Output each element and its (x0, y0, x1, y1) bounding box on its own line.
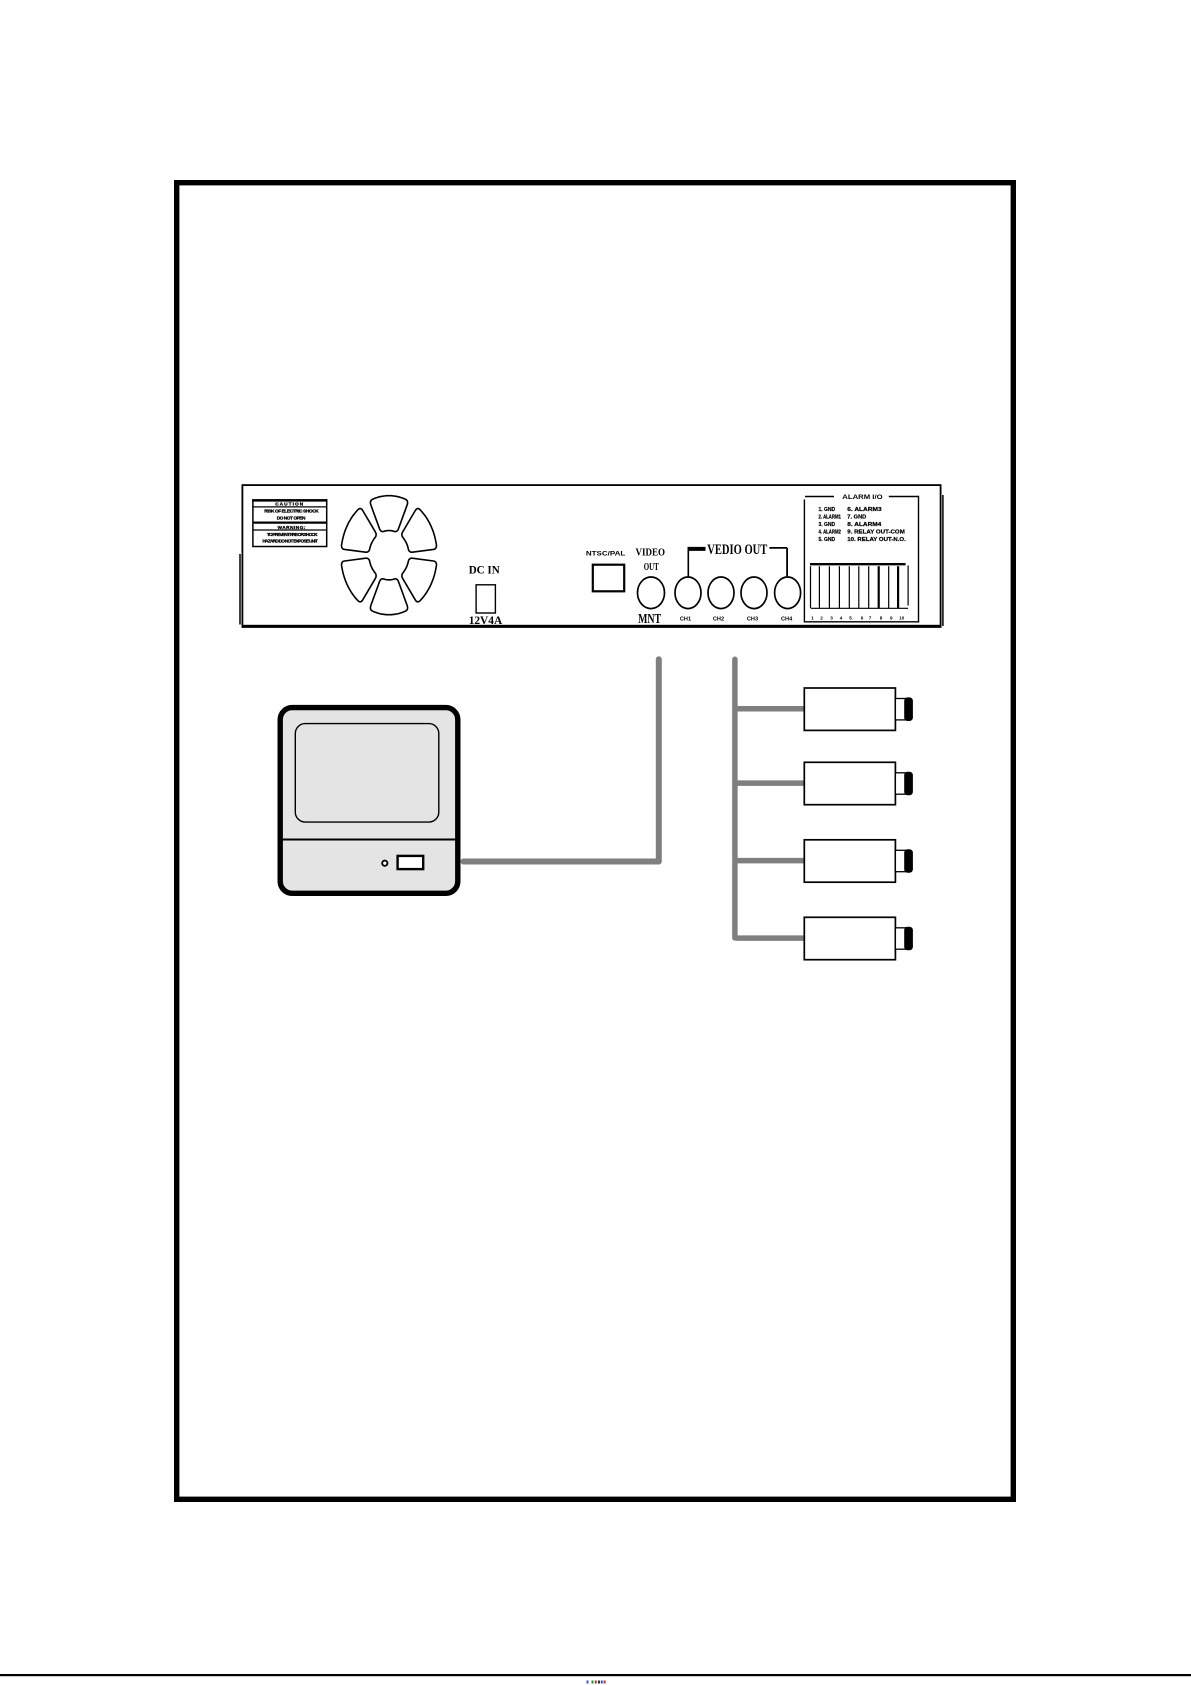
svg-text:VIDEO: VIDEO (636, 547, 666, 558)
svg-text:7. GND: 7. GND (847, 514, 866, 520)
svg-text:9: 9 (890, 616, 893, 621)
svg-text:CAUTION: CAUTION (275, 502, 304, 508)
svg-text:10. RELAY OUT-N.O.: 10. RELAY OUT-N.O. (847, 537, 906, 543)
svg-text:4: 4 (840, 616, 843, 621)
svg-text:10: 10 (899, 616, 905, 621)
svg-text:7: 7 (869, 616, 872, 621)
svg-text:1. GND: 1. GND (819, 507, 836, 513)
svg-text:12V4A: 12V4A (469, 615, 503, 627)
svg-text:ALARM I/O: ALARM I/O (842, 494, 882, 501)
svg-text:9. RELAY OUT-COM: 9. RELAY OUT-COM (847, 530, 905, 536)
svg-text:VEDIO OUT: VEDIO OUT (707, 542, 767, 558)
svg-text:MNT: MNT (638, 612, 661, 627)
svg-text:NTSC/PAL: NTSC/PAL (586, 550, 626, 557)
svg-text:3: 3 (830, 616, 833, 621)
svg-text:DO NOT OPEN: DO NOT OPEN (277, 516, 306, 522)
svg-text:CH2: CH2 (713, 617, 724, 623)
svg-text:6. ALARM3: 6. ALARM3 (847, 507, 881, 513)
svg-text:4. ALARM2: 4. ALARM2 (819, 530, 841, 536)
svg-text:OUT: OUT (644, 562, 659, 573)
svg-text:WARNING:: WARNING: (278, 525, 306, 531)
svg-text:RISK OF ELECTRIC SHOCK: RISK OF ELECTRIC SHOCK (264, 509, 319, 515)
svg-text:6: 6 (861, 616, 864, 621)
svg-text:3. GND: 3. GND (819, 522, 836, 528)
svg-text:5. GND: 5. GND (819, 537, 836, 543)
svg-text:DC IN: DC IN (469, 563, 500, 577)
svg-text:TO PREVENT FIRE OR SHOCK: TO PREVENT FIRE OR SHOCK (267, 532, 318, 538)
svg-text:8: 8 (880, 616, 883, 621)
svg-text:HAZARD DO NOT EXPOSE UNIT: HAZARD DO NOT EXPOSE UNIT (262, 539, 318, 545)
svg-text:CH3: CH3 (747, 617, 758, 623)
svg-text:1: 1 (811, 616, 814, 621)
svg-text:2. ALARM1: 2. ALARM1 (819, 514, 841, 520)
svg-text:8. ALARM4: 8. ALARM4 (847, 522, 881, 528)
svg-text:2: 2 (820, 616, 823, 621)
svg-text:CH1: CH1 (680, 617, 691, 623)
svg-text:CH4: CH4 (781, 617, 793, 623)
svg-text:5: 5 (849, 616, 852, 621)
